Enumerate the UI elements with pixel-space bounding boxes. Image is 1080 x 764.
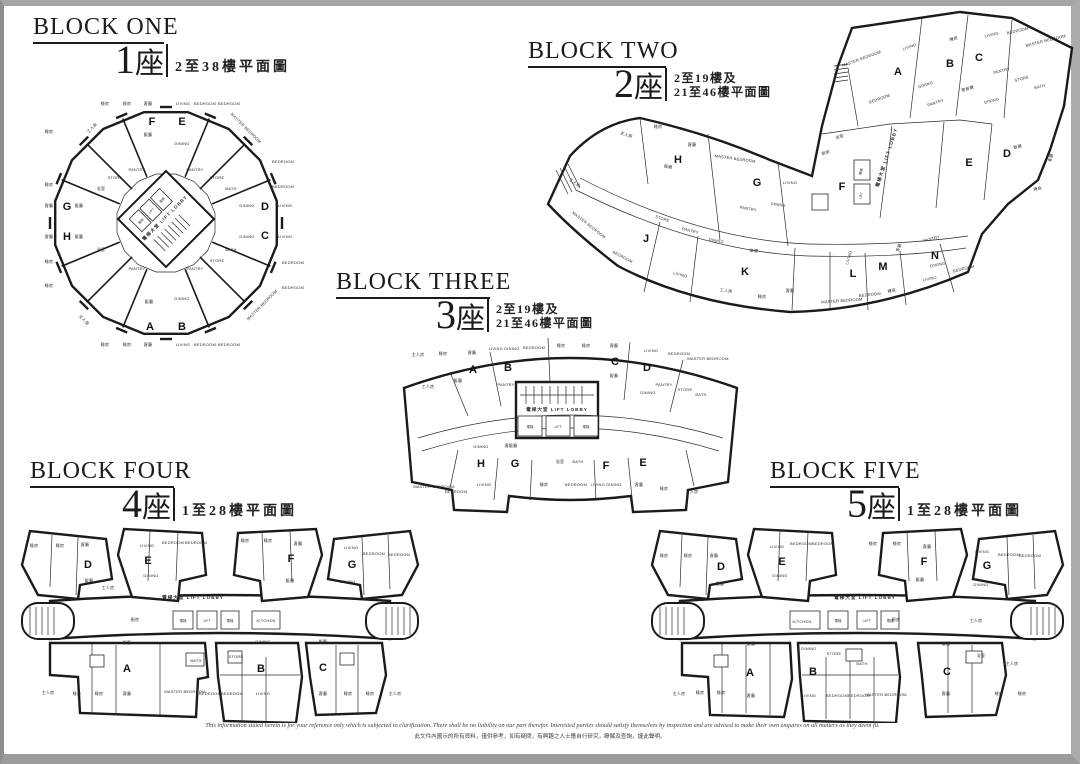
room-label: STORE bbox=[678, 387, 693, 392]
room-label: STORE bbox=[229, 654, 244, 659]
title-divider bbox=[166, 44, 168, 77]
room-label: LIVING bbox=[140, 543, 154, 548]
room-label: DINING bbox=[340, 579, 355, 584]
room-label: BATH bbox=[856, 661, 867, 666]
lift-lobby-label: 電梯大堂 LIFT LOBBY bbox=[162, 594, 224, 601]
block-one-floorplan: 電梯LIFT電梯電梯大堂 LIFT LOBBY工人房睡房睡房客廳飯廳LIVING… bbox=[35, 93, 305, 368]
room-label: DINING bbox=[973, 582, 988, 587]
block-number: 1座 bbox=[115, 44, 164, 77]
room-label: BATH bbox=[225, 186, 236, 191]
block-number: 3座 bbox=[436, 299, 485, 332]
lift-label: 電梯 bbox=[583, 424, 590, 429]
block-two-floorplan: 電梯LIFT電梯大堂 LIFT LOBBY主人房睡房客廳飯廳MASTER BED… bbox=[540, 8, 1075, 320]
room-label: LIVING bbox=[783, 180, 797, 185]
room-label: 主人房 bbox=[389, 690, 402, 696]
room-label: 飯廳 bbox=[916, 576, 924, 582]
room-label: 睡房 bbox=[654, 123, 662, 129]
room-label: 睡房 bbox=[887, 286, 896, 293]
room-label: BATH bbox=[190, 658, 201, 663]
room-label: 飯廳 bbox=[750, 247, 759, 254]
room-label: BEDROOM bbox=[282, 285, 304, 290]
room-label: 浴室 bbox=[556, 458, 564, 464]
title-divider bbox=[487, 299, 489, 332]
block-subtitle: 1至28樓平面圖 bbox=[182, 500, 297, 520]
room-label: BEDROOM bbox=[185, 540, 207, 545]
room-label: STORE bbox=[210, 258, 225, 263]
room-label: 睡房 bbox=[758, 293, 766, 299]
lift-label: 電梯 bbox=[180, 618, 187, 623]
unit-label-A: A bbox=[123, 663, 131, 675]
room-label: 客廳 bbox=[144, 341, 152, 347]
unit-label-A: A bbox=[146, 321, 154, 333]
room-label: LIVING bbox=[477, 482, 491, 487]
room-label: 飯廳 bbox=[716, 580, 724, 586]
room-label: DINING bbox=[239, 234, 254, 239]
room-label: 客廳 bbox=[747, 692, 755, 698]
room-label: 飯廳 bbox=[85, 577, 93, 583]
room-label: 睡房 bbox=[684, 552, 692, 558]
room-label: 睡房 bbox=[660, 485, 668, 491]
room-label: BEDROOM bbox=[1019, 553, 1041, 558]
unit-label-H: H bbox=[477, 458, 485, 470]
room-label: 睡房 bbox=[439, 350, 447, 356]
room-label: LIVING bbox=[176, 101, 190, 106]
unit-label-C: C bbox=[943, 666, 951, 678]
room-label: BATH bbox=[572, 459, 583, 464]
room-label: 工人房 bbox=[970, 617, 983, 623]
room-label: PANTRY bbox=[128, 167, 145, 172]
unit-label-G: G bbox=[348, 559, 357, 571]
room-label: 睡房 bbox=[660, 552, 668, 558]
unit-label-D: D bbox=[643, 362, 651, 374]
room-label: 飯廳 bbox=[123, 639, 131, 645]
room-label: 睡房 bbox=[56, 542, 64, 548]
unit-label-L: L bbox=[850, 268, 857, 280]
room-label: 客廳 bbox=[144, 100, 152, 106]
room-label: 客廳 bbox=[942, 690, 950, 696]
unit-label-E: E bbox=[178, 116, 185, 128]
room-label: 飯廳 bbox=[942, 640, 950, 646]
room-label: 睡房 bbox=[869, 540, 877, 546]
unit-label-B: B bbox=[504, 362, 512, 374]
room-label: 浴室 bbox=[97, 246, 105, 252]
disclaimer: This information stated herein is for yo… bbox=[0, 722, 1080, 745]
block-five-plan-drawing: 電梯LIFT電梯電梯大堂 LIFT LOBBY睡房睡房客廳飯廳LIVINGBED… bbox=[650, 527, 1065, 723]
room-label: 飯廳 bbox=[319, 638, 327, 644]
room-label: 主人房 bbox=[412, 351, 425, 357]
lift-label: 電梯 bbox=[227, 618, 234, 623]
block-title-en: BLOCK FIVE bbox=[770, 458, 899, 488]
room-label: 客廳 bbox=[610, 342, 618, 348]
unit-label-N: N bbox=[931, 250, 939, 262]
room-label: 客廳 bbox=[45, 202, 53, 208]
block-number: 4座 bbox=[122, 488, 171, 521]
room-label: BEDROOM bbox=[790, 541, 812, 546]
block-number: 5座 bbox=[847, 488, 896, 521]
room-label: PANTRY bbox=[186, 266, 203, 271]
room-label: 睡房 bbox=[123, 341, 131, 347]
room-label: 睡房 bbox=[45, 258, 53, 264]
room-label: BEDROOM bbox=[388, 552, 410, 557]
room-label: 睡房 bbox=[582, 342, 590, 348]
unit-label-M: M bbox=[878, 261, 887, 273]
unit-label-G: G bbox=[63, 201, 72, 213]
room-label: 睡房 bbox=[893, 540, 901, 546]
room-label: 睡房 bbox=[101, 100, 109, 106]
unit-label-E: E bbox=[965, 157, 972, 169]
room-label: BATH bbox=[225, 247, 236, 252]
unit-label-D: D bbox=[261, 201, 269, 213]
unit-label-C: C bbox=[611, 356, 619, 368]
room-label: KITCHEN bbox=[793, 619, 812, 624]
room-label: 工人房 bbox=[85, 121, 98, 134]
room-label: 客廳 bbox=[319, 690, 327, 696]
room-label: 客廳 bbox=[468, 349, 476, 355]
unit-label-J: J bbox=[643, 233, 649, 245]
room-label: 主人房 bbox=[673, 690, 686, 696]
room-label: 主人房 bbox=[78, 313, 91, 326]
unit-label-F: F bbox=[839, 181, 846, 193]
block-two-plan-drawing: 電梯LIFT電梯大堂 LIFT LOBBY主人房睡房客廳飯廳MASTER BED… bbox=[540, 8, 1075, 320]
room-label: 工人房 bbox=[102, 584, 115, 590]
unit-label-K: K bbox=[741, 266, 749, 278]
room-label: MASTER BEDROOM bbox=[865, 692, 906, 697]
room-label: BEDROOM bbox=[523, 345, 545, 350]
floorplan-sheet: BLOCK ONE 1座 2至38樓平面圖 BLOCK TWO 2座 2至19樓… bbox=[0, 0, 1080, 764]
unit-label-F: F bbox=[603, 460, 610, 472]
room-label: PANTRY bbox=[497, 382, 514, 387]
unit-label-A: A bbox=[894, 66, 902, 78]
unit-label-B: B bbox=[809, 666, 817, 678]
room-label: 客廳 bbox=[635, 481, 643, 487]
room-label: 主人房 bbox=[1006, 660, 1019, 666]
room-label: 飯廳 bbox=[747, 640, 755, 646]
lift-label: 電梯 bbox=[835, 618, 842, 623]
block-subtitle: 2至38樓平面圖 bbox=[175, 56, 290, 76]
unit-label-C: C bbox=[975, 52, 983, 64]
room-label: 客飯廳 bbox=[505, 442, 518, 448]
room-label: 浴室 bbox=[97, 185, 105, 191]
room-label: BEDROOM bbox=[272, 159, 294, 164]
room-label: LIVING bbox=[975, 549, 989, 554]
block-four-floorplan: 電梯LIFT電梯電梯大堂 LIFT LOBBY睡房睡房客廳飯廳LIVINGBED… bbox=[20, 527, 420, 723]
block-five-title: BLOCK FIVE 5座 1至28樓平面圖 bbox=[770, 458, 1022, 521]
room-label: PANTRY bbox=[186, 167, 203, 172]
disclaimer-chinese: 此文件內圖示的所有資料，僅供參考，如有疑問，有興趣之人士應自行研究，瞭解及查詢，… bbox=[205, 732, 875, 740]
room-label: 睡房 bbox=[45, 128, 53, 134]
room-label: 飯廳 bbox=[610, 372, 618, 378]
room-label: LIVING bbox=[770, 544, 784, 549]
room-label: 主人房 bbox=[686, 488, 699, 494]
room-label: BEDROOM bbox=[272, 184, 294, 189]
room-label: PANTRY bbox=[655, 382, 672, 387]
unit-label-H: H bbox=[63, 231, 71, 243]
block-five-floorplan: 電梯LIFT電梯電梯大堂 LIFT LOBBY睡房睡房客廳飯廳LIVINGBED… bbox=[650, 527, 1065, 723]
unit-label-E: E bbox=[639, 457, 646, 469]
room-label: BEDROOM bbox=[826, 693, 848, 698]
unit-label-H: H bbox=[674, 154, 682, 166]
room-label: 睡房 bbox=[30, 542, 38, 548]
room-label: 睡房 bbox=[1033, 184, 1042, 191]
block-title-en: BLOCK FOUR bbox=[30, 458, 174, 488]
room-label: KITCHEN bbox=[257, 618, 276, 623]
room-label: 飯廳 bbox=[75, 202, 83, 208]
unit-label-A: A bbox=[746, 667, 754, 679]
room-label: 睡房 bbox=[717, 689, 725, 695]
title-divider bbox=[898, 488, 900, 521]
room-label: BEDROOM bbox=[998, 552, 1020, 557]
room-label: BEDROOM bbox=[162, 540, 184, 545]
unit-label-B: B bbox=[946, 58, 954, 70]
room-label: DINING bbox=[640, 390, 655, 395]
room-label: BEDROOM bbox=[565, 482, 587, 487]
block-one-title: BLOCK ONE 1座 2至38樓平面圖 bbox=[33, 14, 290, 77]
room-label: 客廳 bbox=[923, 543, 931, 549]
room-label: 客廳 bbox=[45, 233, 53, 239]
room-label: 客廳 bbox=[81, 541, 89, 547]
room-label: BEDROOM bbox=[218, 342, 240, 347]
room-label: 睡房 bbox=[73, 690, 81, 696]
room-label: BEDROOM bbox=[812, 541, 834, 546]
unit-label-E: E bbox=[144, 555, 151, 567]
unit-label-D: D bbox=[84, 559, 92, 571]
block-four-title: BLOCK FOUR 4座 1至28樓平面圖 bbox=[30, 458, 297, 521]
room-label: BEDROOM bbox=[218, 101, 240, 106]
lift-lobby-label: 電梯大堂 LIFT LOBBY bbox=[834, 594, 896, 601]
lift-label: 電梯 bbox=[527, 424, 534, 429]
unit-label-C: C bbox=[261, 230, 269, 242]
lift-lobby-label: 電梯大堂 LIFT LOBBY bbox=[526, 406, 588, 413]
room-label: BATH bbox=[695, 392, 706, 397]
room-label: MASTER BEDROOM bbox=[687, 356, 728, 361]
block-title-en: BLOCK THREE bbox=[336, 269, 490, 299]
unit-label-D: D bbox=[717, 561, 725, 573]
lift-label: LIFT bbox=[555, 425, 562, 429]
unit-label-B: B bbox=[178, 321, 186, 333]
room-label: DINING bbox=[473, 444, 488, 449]
room-label: BEDROOM bbox=[194, 101, 216, 106]
room-label: DINING bbox=[801, 646, 816, 651]
room-label: PANTRY bbox=[128, 266, 145, 271]
room-label: 飯廳 bbox=[144, 131, 152, 137]
room-label: BEDROOM bbox=[194, 342, 216, 347]
unit-label-G: G bbox=[983, 560, 992, 572]
room-label: 睡房 bbox=[696, 689, 704, 695]
room-label: 客廳 bbox=[688, 141, 696, 147]
room-label: LIVING DINING bbox=[489, 346, 520, 351]
block-title-en: BLOCK ONE bbox=[33, 14, 164, 44]
room-label: LIVING bbox=[256, 691, 270, 696]
room-label: DINING bbox=[239, 203, 254, 208]
lift-label: LIFT bbox=[204, 619, 211, 623]
room-label: 睡房 bbox=[344, 690, 352, 696]
room-label: 飯廳 bbox=[454, 377, 462, 383]
unit-label-F: F bbox=[288, 553, 295, 565]
room-label: LIVING bbox=[644, 348, 658, 353]
room-label: BEDROOM bbox=[199, 691, 221, 696]
room-label: DINING bbox=[174, 296, 189, 301]
unit-label-D: D bbox=[1003, 148, 1011, 160]
room-label: 浴室 bbox=[977, 652, 985, 658]
room-label: 飯廳 bbox=[145, 298, 153, 304]
unit-label-G: G bbox=[753, 177, 762, 189]
block-three-plan-drawing: 電梯LIFT電梯電梯大堂 LIFT LOBBY主人房睡房客廳LIVING DIN… bbox=[398, 330, 743, 525]
room-label: STORE bbox=[108, 175, 123, 180]
room-label: 睡房 bbox=[101, 341, 109, 347]
disclaimer-english: This information stated herein is for yo… bbox=[205, 722, 875, 729]
unit-label-B: B bbox=[257, 663, 265, 675]
room-label: 睡房 bbox=[241, 537, 249, 543]
room-label: 主人房 bbox=[42, 689, 55, 695]
room-label: DINING bbox=[772, 573, 787, 578]
room-label: 客廳 bbox=[294, 540, 302, 546]
room-label: 客廳 bbox=[786, 287, 794, 293]
room-label: 睡房 bbox=[123, 100, 131, 106]
room-label: 工人房 bbox=[422, 383, 435, 389]
room-label: 睡房 bbox=[95, 690, 103, 696]
block-three-floorplan: 電梯LIFT電梯電梯大堂 LIFT LOBBY主人房睡房客廳LIVING DIN… bbox=[398, 330, 743, 525]
room-label: LIVING bbox=[802, 693, 816, 698]
room-label: DINING bbox=[255, 639, 270, 644]
block-four-plan-drawing: 電梯LIFT電梯電梯大堂 LIFT LOBBY睡房睡房客廳飯廳LIVINGBED… bbox=[20, 527, 420, 723]
room-label: 客廳 bbox=[123, 690, 131, 696]
room-label: 客廳 bbox=[710, 552, 718, 558]
room-label: LIVING DINING bbox=[591, 482, 622, 487]
block-subtitle: 1至28樓平面圖 bbox=[907, 500, 1022, 520]
unit-label-C: C bbox=[319, 662, 327, 674]
room-label: 睡房 bbox=[1018, 690, 1026, 696]
unit-label-E: E bbox=[778, 556, 785, 568]
room-label: 廚房 bbox=[131, 616, 139, 622]
room-label: 廚房 bbox=[892, 616, 900, 622]
room-label: LIVING bbox=[278, 203, 292, 208]
room-label: STORE bbox=[210, 175, 225, 180]
room-label: 睡房 bbox=[45, 181, 53, 187]
unit-label-F: F bbox=[149, 116, 156, 128]
room-label: 睡房 bbox=[540, 481, 548, 487]
room-label: BEDROOM bbox=[445, 489, 467, 494]
room-label: DINING bbox=[174, 141, 189, 146]
room-label: 睡房 bbox=[264, 537, 272, 543]
room-label: BEDROOM bbox=[363, 551, 385, 556]
lift-label: LIFT bbox=[864, 619, 871, 623]
room-label: 飯廳 bbox=[75, 233, 83, 239]
room-label: DINING bbox=[143, 573, 158, 578]
block-one-plan-drawing: 電梯LIFT電梯電梯大堂 LIFT LOBBY工人房睡房睡房客廳飯廳LIVING… bbox=[35, 93, 305, 368]
room-label: 飯廳 bbox=[286, 577, 294, 583]
room-label: LIVING bbox=[344, 545, 358, 550]
room-label: BEDROOM bbox=[221, 691, 243, 696]
unit-label-A: A bbox=[469, 364, 477, 376]
unit-label-G: G bbox=[511, 458, 520, 470]
room-label: 睡房 bbox=[45, 282, 53, 288]
room-label: LIVING bbox=[176, 342, 190, 347]
unit-label-F: F bbox=[921, 556, 928, 568]
room-label: BEDROOM bbox=[282, 260, 304, 265]
room-label: 睡房 bbox=[366, 690, 374, 696]
room-label: 睡房 bbox=[557, 342, 565, 348]
title-divider bbox=[173, 488, 175, 521]
room-label: 睡房 bbox=[995, 690, 1003, 696]
room-label: LIVING bbox=[278, 234, 292, 239]
room-label: STORE bbox=[827, 651, 842, 656]
